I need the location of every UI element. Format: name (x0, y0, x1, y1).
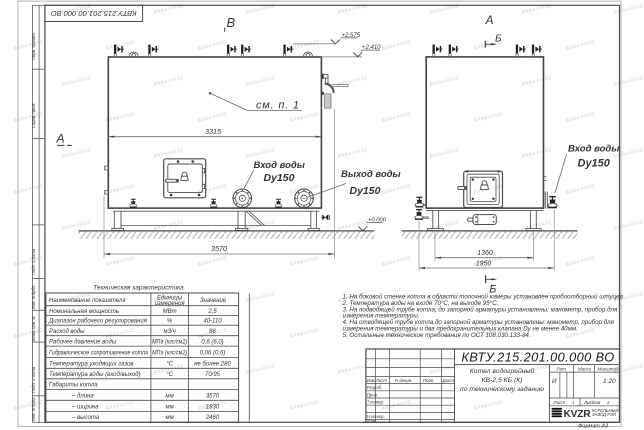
svg-text:70/95: 70/95 (205, 372, 221, 378)
svg-text:Дата: Дата (442, 378, 455, 383)
svg-text:Пров.: Пров. (367, 392, 378, 397)
svg-text:Масса: Масса (578, 366, 592, 371)
svg-text:Формат А3: Формат А3 (578, 423, 609, 429)
svg-text:Выход воды: Выход воды (341, 169, 401, 180)
svg-text:3570: 3570 (206, 393, 220, 399)
svg-text:Перв. примен.: Перв. примен. (31, 32, 36, 60)
svg-text:Инв. N дубл.: Инв. N дубл. (31, 285, 36, 309)
svg-text:0,06 (0,6): 0,06 (0,6) (200, 350, 226, 356)
svg-text:– высота: – высота (71, 415, 100, 421)
svg-text:Разраб.: Разраб. (367, 385, 383, 390)
svg-text:1830: 1830 (206, 404, 220, 410)
svg-text:Лит.: Лит. (556, 366, 568, 371)
svg-text:Dy150: Dy150 (578, 158, 611, 170)
svg-text:– ширина: – ширина (71, 404, 99, 410)
svg-text:не более 280: не более 280 (194, 361, 231, 367)
svg-text:3315: 3315 (205, 127, 222, 136)
svg-text:1:20: 1:20 (603, 378, 616, 385)
svg-text:КВТУ.215.201.00.000 ВО: КВТУ.215.201.00.000 ВО (461, 350, 614, 365)
svg-text:0,6 (6,0): 0,6 (6,0) (201, 339, 223, 345)
svg-text:МВт: МВт (163, 309, 177, 315)
svg-text:КВТУ.215.201.00.000 ВО: КВТУ.215.201.00.000 ВО (51, 9, 137, 18)
svg-text:Изм.Лист: Изм.Лист (367, 378, 388, 383)
svg-text:1950: 1950 (476, 260, 492, 267)
svg-text:N докум.: N докум. (395, 378, 412, 383)
svg-text:мм: мм (165, 404, 173, 410)
svg-text:– длина: – длина (71, 393, 94, 399)
svg-text:+2.410: +2.410 (362, 45, 381, 51)
svg-text:Рабочее давление воды: Рабочее давление воды (49, 339, 117, 345)
svg-text:2,5: 2,5 (207, 309, 217, 315)
svg-text:Значение: Значение (200, 298, 227, 304)
svg-text:Вход воды: Вход воды (568, 144, 619, 155)
svg-text:Температура уходящих газов: Температура уходящих газов (49, 361, 134, 367)
svg-text:Подп. и дата: Подп. и дата (31, 248, 36, 275)
svg-text:Масштаб: Масштаб (598, 366, 619, 371)
svg-text:мм: мм (165, 415, 173, 421)
svg-text:Габариты котла: Габариты котла (49, 383, 98, 389)
svg-text:ЗАВОД РЭП: ЗАВОД РЭП (592, 412, 617, 417)
svg-text:°С: °С (166, 372, 173, 378)
svg-text:2460: 2460 (205, 415, 220, 421)
svg-text:И: И (552, 378, 557, 385)
svg-text:KVZR: KVZR (564, 409, 592, 420)
svg-text:Справ. прим.: Справ. прим. (31, 103, 36, 129)
svg-text:Подп.: Подп. (423, 378, 434, 383)
svg-text:Лист: Лист (553, 400, 566, 405)
svg-text:Утв.: Утв. (367, 418, 377, 423)
svg-text:МПа (кгс/см2): МПа (кгс/см2) (152, 339, 187, 345)
svg-text:Подп. и дата: Подп. и дата (31, 366, 36, 393)
svg-text:Б: Б (495, 34, 502, 45)
svg-text:измерения: измерения (155, 301, 186, 307)
svg-text:Инв. N подл.: Инв. N подл. (31, 397, 36, 421)
svg-text:Dy150: Dy150 (350, 185, 381, 197)
svg-text:Т.контр.: Т.контр. (367, 400, 384, 405)
svg-text:Температура воды (вход/выход): Температура воды (вход/выход) (49, 372, 141, 378)
svg-text:Dy150: Dy150 (264, 172, 295, 184)
svg-text:+2.575: +2.575 (342, 33, 361, 39)
svg-text:В: В (227, 15, 236, 30)
svg-text:40-110: 40-110 (203, 319, 222, 325)
svg-text:Гидравлическое сопротивление к: Гидравлическое сопротивление котла (49, 350, 149, 356)
svg-text:2: 2 (606, 400, 610, 405)
svg-text:Расход воды: Расход воды (49, 329, 85, 335)
svg-text:86: 86 (209, 329, 216, 335)
svg-text:МПа (кгс/см2): МПа (кгс/см2) (152, 350, 187, 356)
svg-text:мм: мм (165, 393, 173, 399)
svg-text:Наименование показателя: Наименование показателя (49, 298, 126, 304)
svg-text:Техническая характеристика: Техническая характеристика (93, 285, 184, 292)
svg-text:Диапазон рабочего регулировани: Диапазон рабочего регулирования (48, 319, 148, 325)
svg-text:м3/ч: м3/ч (163, 329, 175, 335)
svg-text:Котел водогрейный: Котел водогрейный (470, 367, 535, 375)
svg-text:КВ-2,5 КБ (К): КВ-2,5 КБ (К) (482, 377, 523, 384)
svg-text:А: А (56, 132, 65, 146)
svg-text:°С: °С (166, 361, 173, 367)
svg-text:см. п. 1: см. п. 1 (256, 100, 300, 112)
svg-text:%: % (167, 319, 173, 325)
svg-text:по техническому заданию: по техническому заданию (460, 385, 544, 393)
svg-text:А: А (485, 13, 494, 27)
svg-text:Листов: Листов (583, 400, 601, 405)
svg-text:1360: 1360 (477, 250, 493, 257)
svg-text:3570: 3570 (211, 244, 227, 253)
svg-text:Вход воды: Вход воды (254, 160, 305, 171)
svg-text:Номинальная мощность: Номинальная мощность (49, 309, 119, 315)
svg-text:Взам. инв. N: Взам. инв. N (31, 316, 36, 341)
svg-text:5. Остальные технические треб: 5. Остальные технические требования по О… (343, 332, 531, 339)
